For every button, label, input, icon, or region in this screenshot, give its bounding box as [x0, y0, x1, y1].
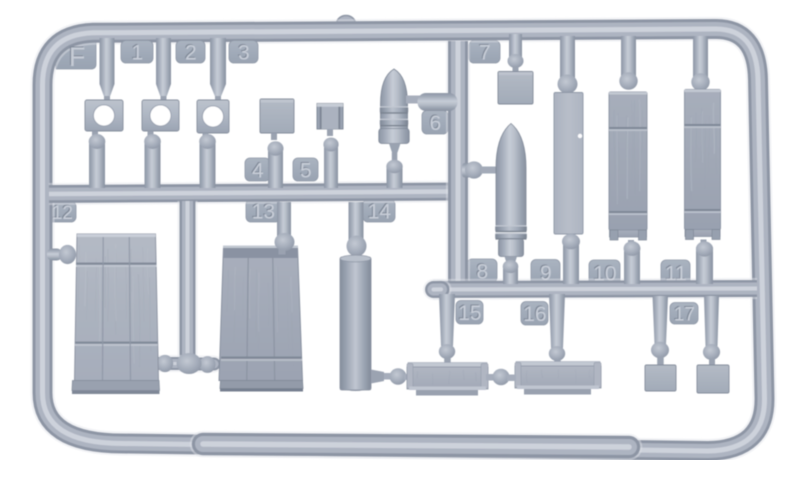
- svg-text:5: 5: [300, 160, 312, 183]
- svg-text:2: 2: [185, 42, 197, 65]
- svg-text:3: 3: [238, 42, 250, 65]
- svg-text:13: 13: [252, 201, 275, 224]
- svg-text:4: 4: [252, 160, 264, 183]
- svg-text:16: 16: [523, 303, 546, 326]
- svg-text:6: 6: [430, 112, 442, 135]
- svg-text:17: 17: [674, 305, 695, 326]
- svg-text:7: 7: [479, 42, 491, 65]
- svg-text:14: 14: [368, 201, 392, 224]
- svg-text:12: 12: [52, 203, 73, 224]
- svg-text:15: 15: [458, 302, 481, 325]
- svg-text:F: F: [69, 42, 86, 72]
- svg-text:1: 1: [132, 42, 144, 65]
